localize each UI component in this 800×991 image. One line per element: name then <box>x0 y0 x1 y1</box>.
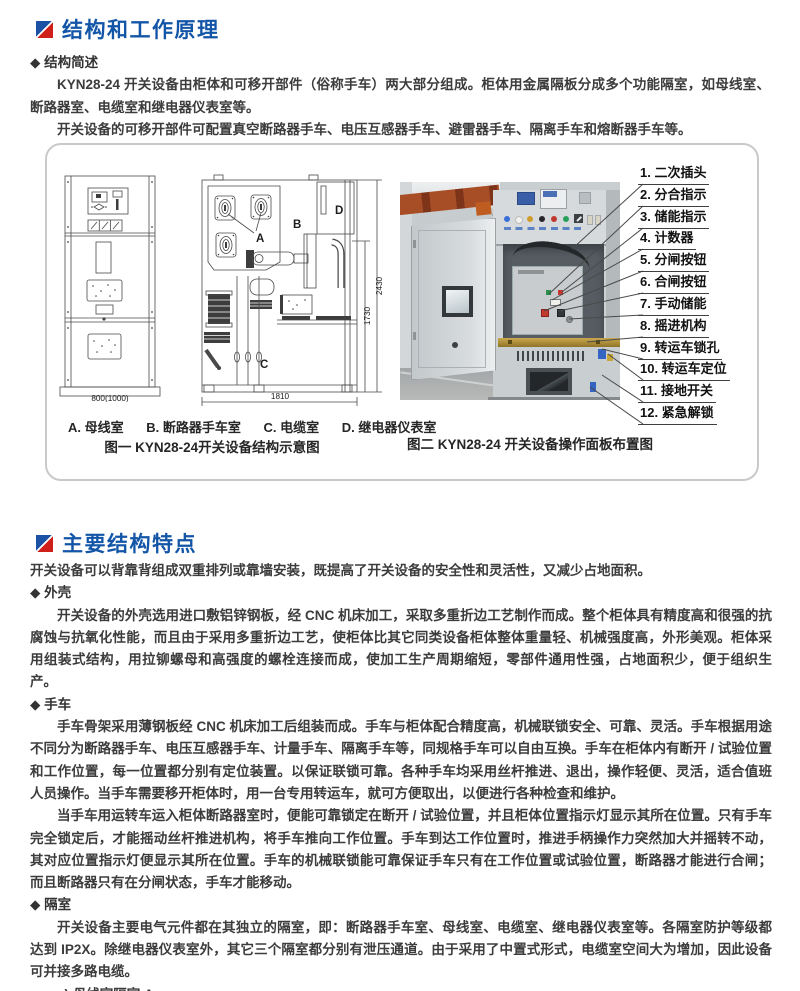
vent-grille <box>517 351 586 361</box>
transfer-cart-lock-blue <box>598 349 606 359</box>
indicator-white <box>515 216 523 224</box>
door-hinge-bottom <box>413 332 416 340</box>
legend-item: A. 母线室 <box>68 420 124 435</box>
figure1-caption: 图一 KYN28-24开关设备结构示意图 <box>47 436 377 456</box>
door-lock <box>452 342 458 348</box>
door-hinge-top <box>413 240 416 248</box>
manual-charge-hole <box>566 316 573 323</box>
sub-heading-structure-brief: ◆ 结构简述 <box>30 52 770 74</box>
zone-b-label: B <box>293 219 301 231</box>
callout-manual-charge: 7. 手动储能 <box>638 293 709 316</box>
section-marker-icon <box>36 21 53 38</box>
open-button-red <box>541 309 549 317</box>
cabinet-shadow <box>488 397 620 400</box>
paragraph: 手车骨架采用薄钢板经 CNC 机床加工后组装而成。手车与柜体配合精度高，机械联锁… <box>30 716 772 805</box>
panel-display-blue <box>517 192 535 205</box>
paragraph: 当手车用运转车运入柜体断路器室时，便能可靠锁定在断开 / 试验位置，并且柜体位置… <box>30 805 772 894</box>
side-view-drawing: A B C D 1810 2430 1730 <box>194 164 394 409</box>
callout-earthing-switch: 11. 接地开关 <box>638 380 716 403</box>
door-window-glass <box>446 290 469 313</box>
paragraph: KYN28-24 开关设备由柜体和可移开部件（俗称手车）两大部分组成。柜体用金属… <box>30 74 770 119</box>
section1-body: ◆ 结构简述 KYN28-24 开关设备由柜体和可移开部件（俗称手车）两大部分组… <box>30 52 770 141</box>
section1-header: 结构和工作原理 <box>36 14 220 44</box>
callout-charge-indicator: 3. 储能指示 <box>638 206 709 229</box>
paragraph: 开关设备的可移开部件可配置真空断路器手车、电压互感器手车、避雷器手车、隔离手车和… <box>30 119 770 141</box>
paragraph: 开关设备的外壳选用进口敷铝锌钢板，经 CNC 机床加工，采取多重折边工艺制作而成… <box>30 605 772 694</box>
zone-a-label: A <box>256 233 264 245</box>
callout-close-button: 6. 合闸按钮 <box>638 271 709 294</box>
earthing-switch-slot-blue <box>590 382 596 392</box>
callout-counter: 4. 计数器 <box>638 227 696 250</box>
figure-panel: 800(1000) <box>45 143 759 481</box>
indicator-red <box>551 216 557 222</box>
section2-title: 主要结构特点 <box>62 528 197 558</box>
zone-d-label: D <box>335 205 343 217</box>
sub-heading-compartment: ◆ 隔室 <box>30 894 772 916</box>
callout-open-button: 5. 分闸按钮 <box>638 249 709 272</box>
item-a-heading: a) 母线室隔室 A: <box>30 984 772 991</box>
callout-cart-lock-hole: 9. 转运车锁孔 <box>638 337 722 360</box>
charge-indicator-red <box>558 290 563 295</box>
callout-rack-mechanism: 8. 摇进机构 <box>638 315 709 338</box>
label-strip <box>504 227 584 230</box>
indicator-yellow <box>527 216 533 222</box>
legend-item: C. 电缆室 <box>264 420 320 435</box>
legend-item: B. 断路器手车室 <box>146 420 241 435</box>
paragraph: 开关设备可以背靠背组成双重排列或靠墙安装，既提高了开关设备的安全性和灵活性，又减… <box>30 560 772 582</box>
figure2-caption: 图二 KYN28-24 开关设备操作面板布置图 <box>365 433 695 453</box>
callout-secondary-plug: 1. 二次插头 <box>638 162 709 185</box>
callout-cart-positioning: 10. 转运车定位 <box>638 358 730 381</box>
close-button-dark <box>557 309 565 317</box>
dim-side-width: 1810 <box>271 392 290 401</box>
section-marker-icon <box>36 535 53 552</box>
switchgear-photo <box>400 182 620 400</box>
dim-height-upper: 1730 <box>363 306 372 325</box>
callout-emergency-unlock: 12. 紧急解锁 <box>638 402 717 425</box>
indicator-blue <box>504 216 510 222</box>
transfer-cart-pin-yellow <box>607 354 613 361</box>
section2-body: 开关设备可以背靠背组成双重排列或靠墙安装，既提高了开关设备的安全性和灵活性，又减… <box>30 560 772 991</box>
operation-counter <box>550 299 561 306</box>
front-view-drawing: 800(1000) <box>58 172 162 402</box>
fuse-1 <box>587 215 593 225</box>
fuse-2 <box>595 215 601 225</box>
dim-height-total: 2430 <box>375 276 384 295</box>
rack-in-rail <box>498 338 620 347</box>
dim-front-width: 800(1000) <box>91 394 129 402</box>
crane-bracket <box>475 201 491 215</box>
paragraph: 开关设备主要电气元件都在其独立的隔室，即：断路器手车室、母线室、电缆室、继电器仪… <box>30 917 772 984</box>
panel-gray-box <box>579 192 591 204</box>
lower-window-glass <box>530 372 568 391</box>
open-close-indicator-green <box>546 290 551 295</box>
rail-bolt-left <box>508 340 512 344</box>
rail-bolt-right <box>596 340 600 344</box>
indicator-black <box>539 216 545 222</box>
panel-control-screen <box>543 191 557 197</box>
section1-title: 结构和工作原理 <box>62 14 220 44</box>
document-page: 结构和工作原理 ◆ 结构简述 KYN28-24 开关设备由柜体和可移开部件（俗称… <box>0 0 800 991</box>
indicator-green <box>563 216 569 222</box>
section2-header: 主要结构特点 <box>36 528 197 558</box>
breaker-nameplate <box>518 270 544 274</box>
callout-open-close-indicator: 2. 分合指示 <box>638 184 709 207</box>
zone-c-label: C <box>260 359 268 371</box>
sub-heading-shell: ◆ 外壳 <box>30 582 772 604</box>
sub-heading-trolley: ◆ 手车 <box>30 694 772 716</box>
